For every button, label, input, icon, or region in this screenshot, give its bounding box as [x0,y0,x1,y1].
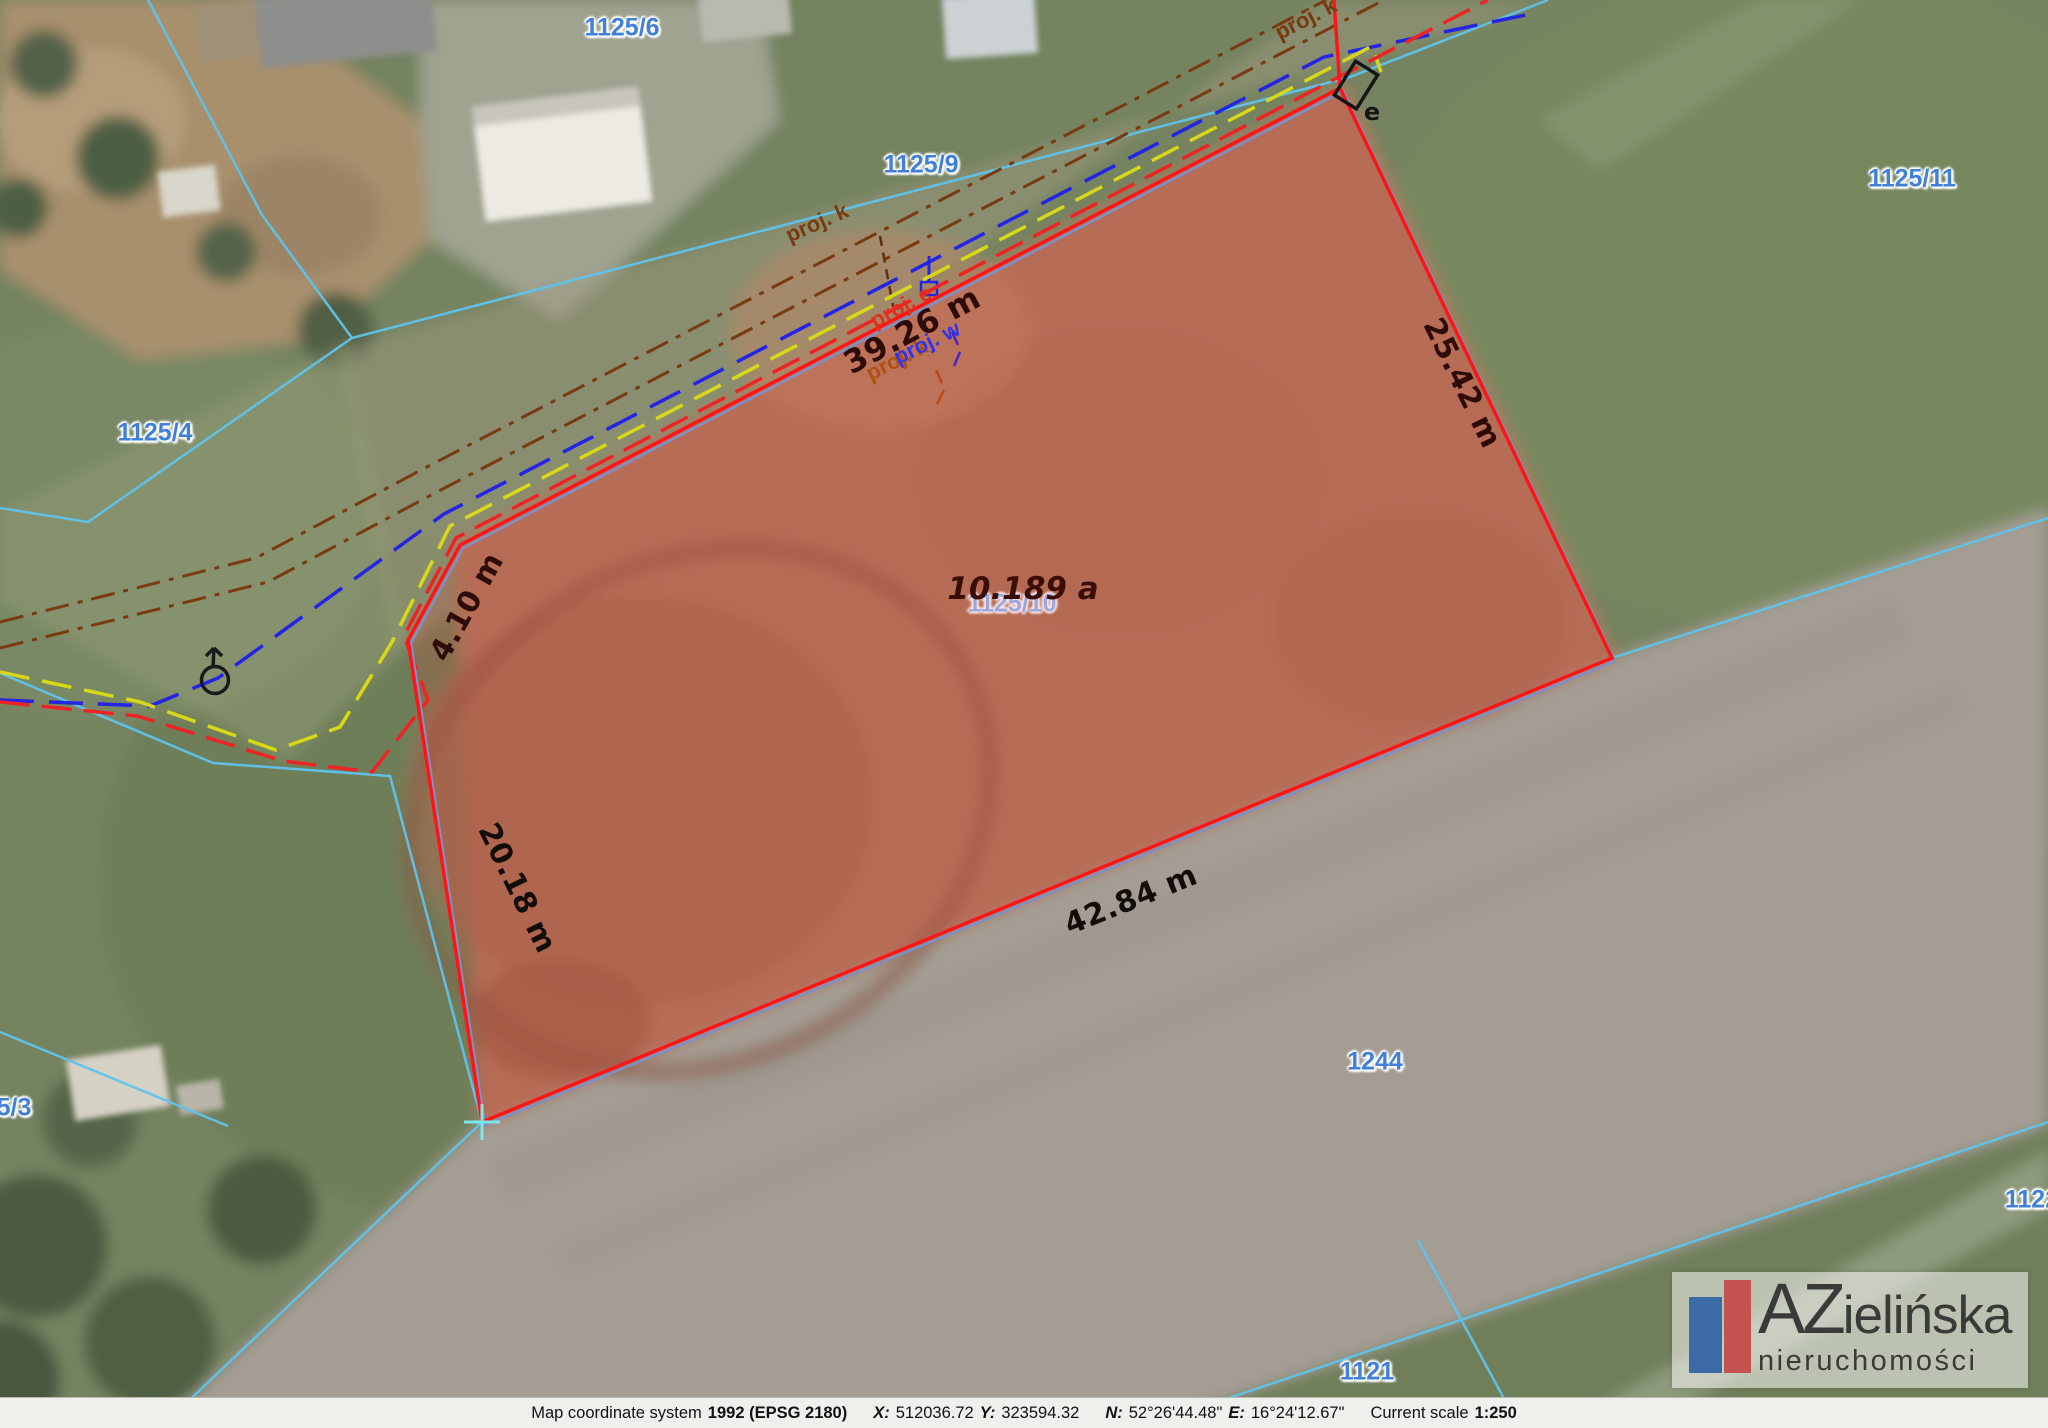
agency-logo: AZielińska nieruchomości [1672,1272,2028,1388]
logo-name: ielińska [1843,1286,2012,1345]
map-viewport[interactable]: 1125/6 1125/9 1125/11 1125/4 1125/10 124… [0,0,2048,1428]
scale-value: 1:250 [1475,1404,1517,1423]
logo-subtitle: nieruchomości [1758,1347,2012,1376]
gis-overlay [0,0,2048,1428]
parcel-label-1121: 1121 [1340,1358,1394,1387]
e-value: 16°24'12.67" [1251,1404,1345,1423]
n-label: N: [1105,1404,1122,1423]
parcel-label-1122: 1122 [2005,1186,2048,1215]
parcel-label-1125-4: 1125/4 [117,419,192,448]
logo-initials: AZ [1758,1270,1843,1349]
area-label: 10.189 a [947,571,1098,607]
y-value: 323594.32 [1001,1404,1079,1423]
status-bar: Map coordinate system 1992 (EPSG 2180) X… [0,1397,2048,1428]
x-value: 512036.72 [896,1404,974,1423]
n-value: 52°26'44.48" [1129,1404,1223,1423]
scale-label: Current scale [1370,1404,1468,1423]
survey-marker-icon [202,648,229,694]
logo-red-bar-icon [1724,1280,1751,1373]
parcel-label-1125-6: 1125/6 [584,14,659,43]
electric-box-label: e [1364,98,1380,126]
e-label: E: [1228,1404,1245,1423]
parcel-label-1125-9: 1125/9 [883,151,958,180]
logo-text: AZielińska nieruchomości [1758,1274,2012,1376]
coord-system-value: 1992 (EPSG 2180) [708,1404,847,1423]
parcel-label-1244: 1244 [1347,1048,1403,1077]
parcel-label-1125-11: 1125/11 [1868,165,1956,194]
y-label: Y: [980,1404,996,1423]
coord-system-label: Map coordinate system [531,1404,702,1423]
logo-blue-bar-icon [1689,1297,1722,1373]
parcel-label-5-3: 5/3 [0,1094,31,1123]
x-label: X: [873,1404,890,1423]
